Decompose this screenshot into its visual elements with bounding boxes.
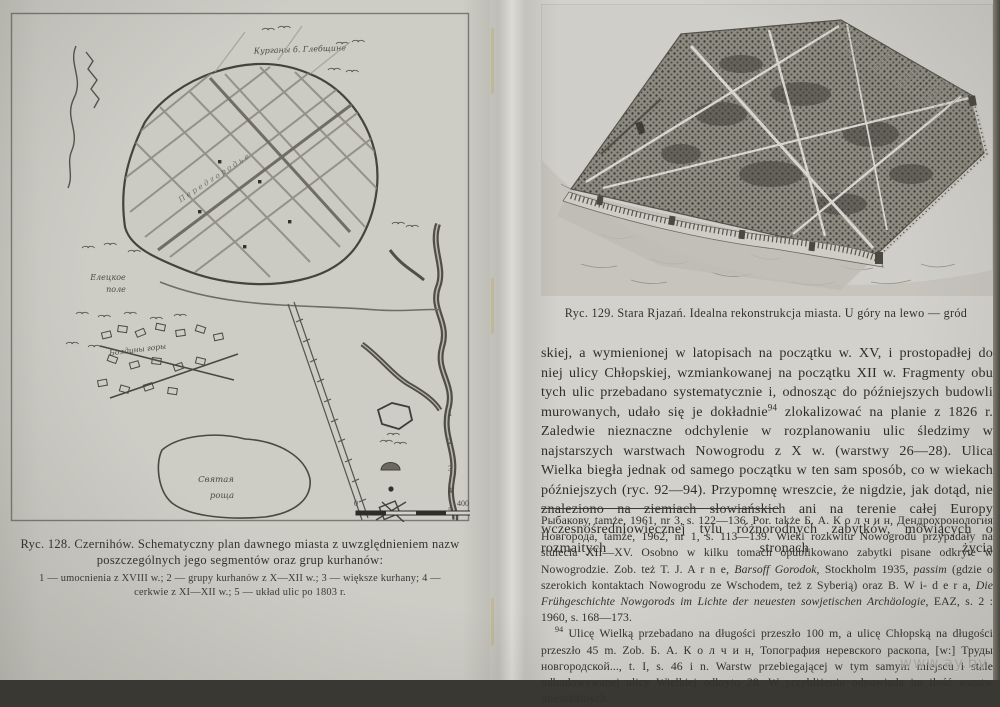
causeway — [288, 302, 368, 520]
figure-129-caption: Ryc. 129. Stara Rjazań. Idealna rekonstr… — [538, 306, 994, 321]
map-label-kurgany: Курганы б. Глебщине — [253, 43, 347, 55]
footnote-rule — [541, 508, 779, 509]
page-gutter — [462, 0, 558, 680]
footnote-93: Рыбакову, tamże, 1961, nr 3, s. 122—136.… — [541, 513, 993, 626]
caption-legend-line-2: cerkwie z XI—XII w.; 5 — układ ulic po 1… — [12, 586, 468, 600]
caption-line-1: Ryc. 128. Czernihów. Schematyczny plan d… — [12, 536, 468, 552]
stream — [68, 46, 99, 188]
footnote-93-title-1: Barsoff Gorodok, — [734, 563, 819, 576]
legend-1: 1 — [448, 408, 452, 418]
map-label-roshcha-2: роща — [210, 491, 234, 501]
map-label-pole-2: поле — [106, 285, 126, 294]
footnote-ref-94: 94 — [768, 402, 777, 412]
czernihow-map: Курганы б. Глебщине П е р е д г о р — [10, 12, 470, 522]
figure-128-caption: Ryc. 128. Czernihów. Schematyczny plan d… — [12, 536, 468, 599]
grove — [158, 435, 310, 518]
book-photo: Курганы б. Глебщине П е р е д г о р — [0, 0, 1000, 680]
watermark: www.ay.by — [900, 654, 988, 672]
map-legend: 1 2 3 4 5 — [376, 403, 453, 522]
legend-3: 3 — [448, 463, 452, 473]
caption-line-2: poszczególnych jego segmentów oraz grup … — [12, 552, 468, 568]
page-edge — [993, 0, 1000, 680]
footnote-93-text-2: Stockholm 1935, — [820, 563, 914, 576]
boldiny-cluster — [98, 323, 238, 398]
legend-2: 2 — [448, 436, 452, 446]
map-label-pole-1: Елецкое — [89, 273, 126, 282]
footnotes-block: Рыбакову, tamże, 1961, nr 3, s. 122—136.… — [541, 513, 993, 707]
figure-129-image — [541, 4, 993, 296]
map-label-roshcha-1: Святая — [198, 475, 234, 485]
scale-zero: 0 — [354, 499, 358, 508]
city-area — [115, 26, 395, 284]
caption-legend-line-1: 1 — umocnienia z XVIII w.; 2 — grupy kur… — [12, 572, 468, 586]
footnote-93-passim: passim — [914, 563, 947, 576]
